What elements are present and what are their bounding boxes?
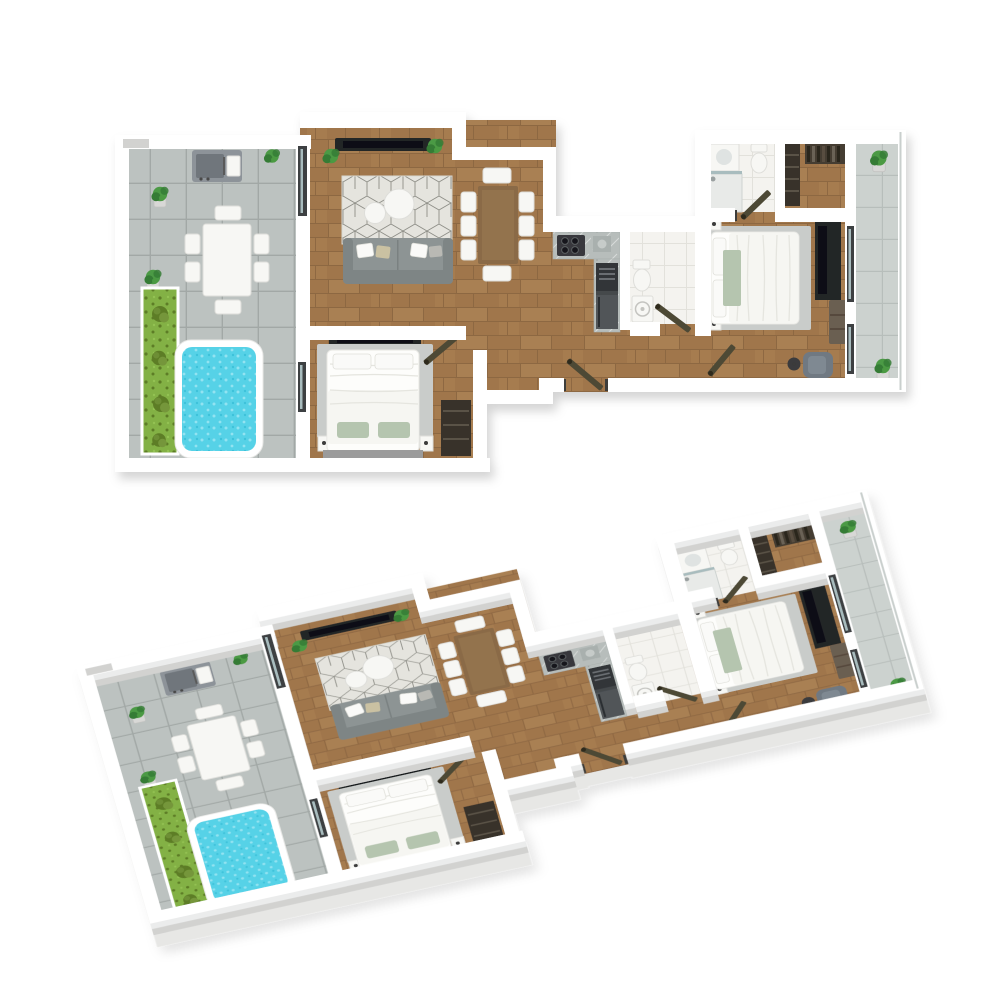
floor-plans-svg (0, 0, 1000, 1000)
isometric-view (71, 476, 945, 935)
top-down-view (115, 112, 906, 472)
floor-plan-render (0, 0, 1000, 1000)
